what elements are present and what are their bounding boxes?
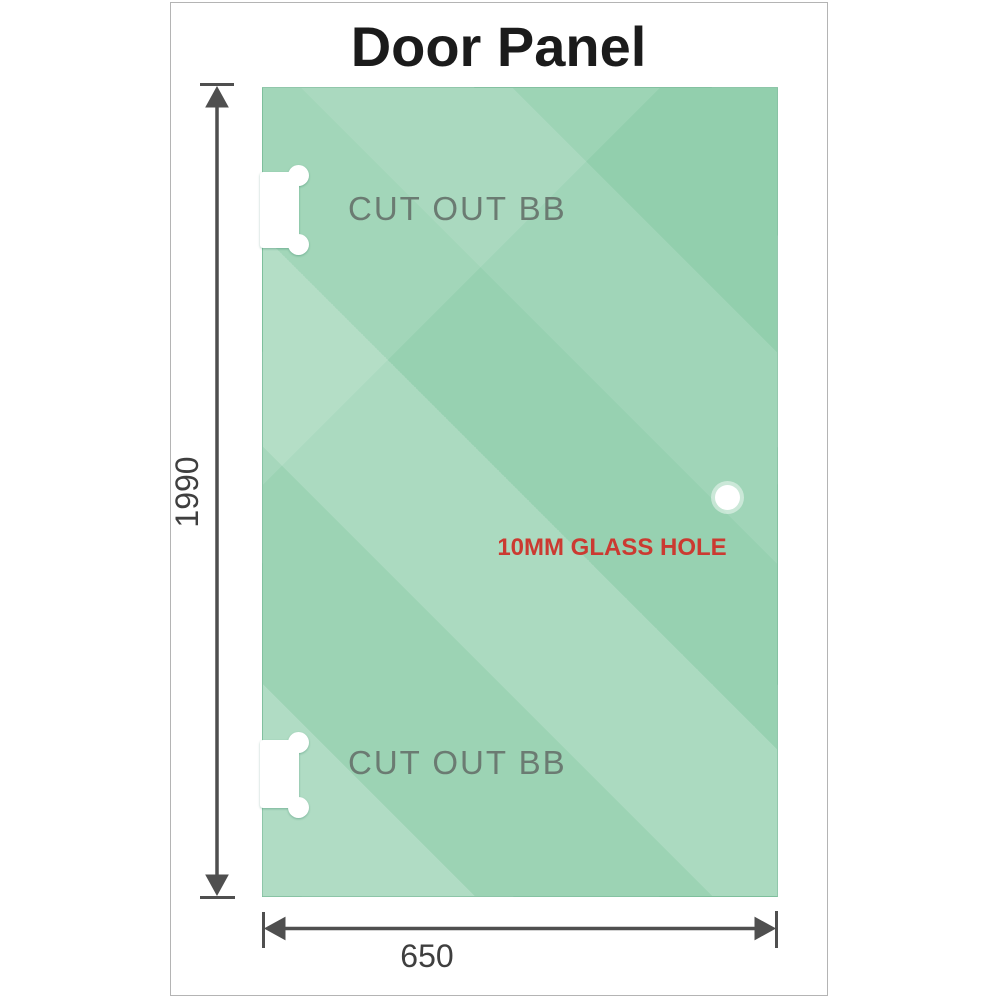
width-dim-arrow-right (755, 918, 775, 940)
height-dim-arrow-up (206, 87, 228, 107)
width-dimension-label: 650 (367, 936, 487, 976)
width-dimension (264, 911, 777, 948)
width-dim-arrow-left (265, 918, 285, 940)
diagram-page: Door Panel CUT OUT BB CUT OUT BB 10MM GL… (0, 0, 1000, 1000)
height-dim-arrow-down (206, 875, 228, 895)
height-dimension-label: 1990 (167, 442, 207, 542)
dimension-lines (0, 0, 1000, 1000)
